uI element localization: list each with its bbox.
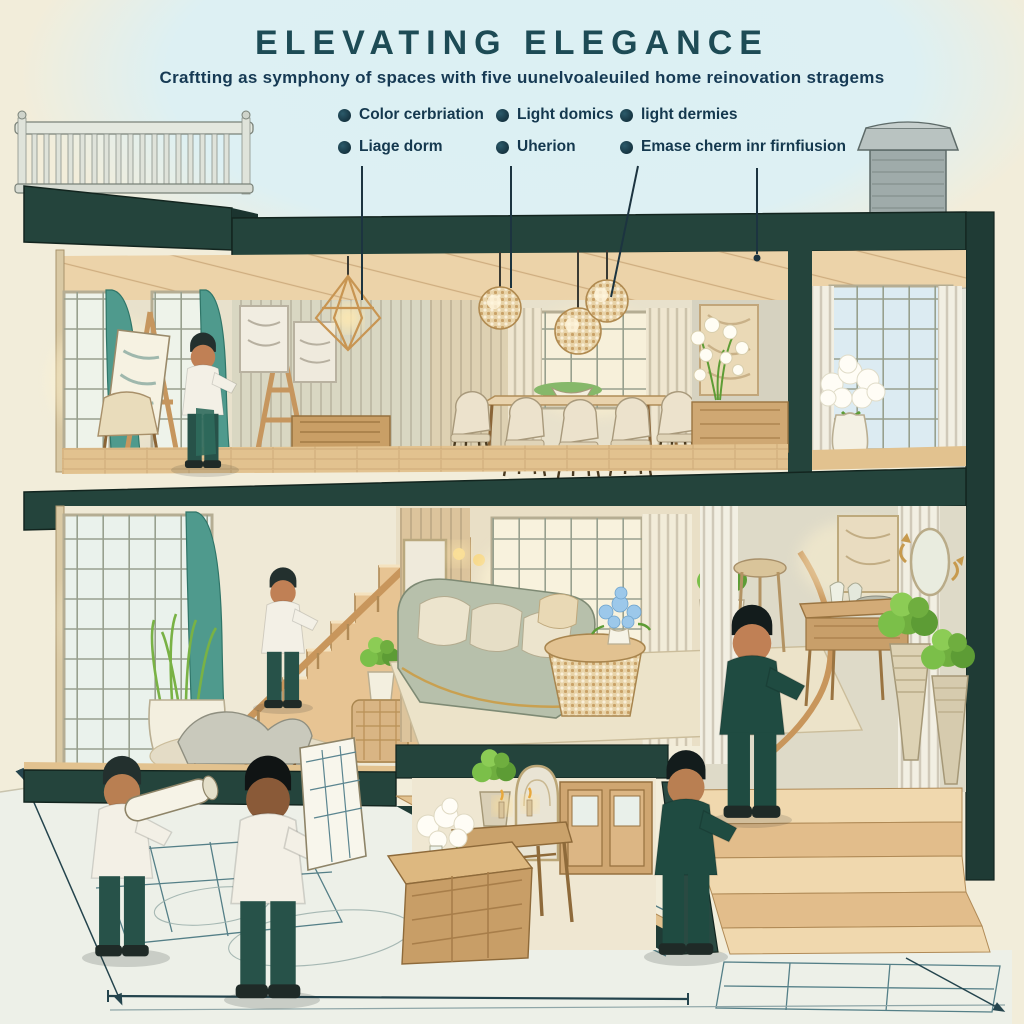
bullet-dot-icon	[338, 141, 351, 154]
bullet-dot-icon	[496, 141, 509, 154]
page-title: ELEVATING ELEGANCE	[0, 24, 1024, 63]
bullet-label: Emase cherm inr firnfiusion	[641, 138, 846, 156]
open-blueprint-sheet	[300, 738, 366, 870]
bullet-dot-icon	[338, 109, 351, 122]
page-subtitle: Craftting as symphony of spaces with fiv…	[10, 68, 1024, 88]
wood-doors	[560, 782, 652, 874]
bullet-dot-icon	[496, 109, 509, 122]
lower-alcove	[388, 745, 668, 964]
bullet-label: Light domics	[517, 106, 613, 124]
sideboard-orchid	[691, 300, 788, 452]
bullet-dot-icon	[620, 141, 633, 154]
bullet-dot-icon	[620, 109, 633, 122]
bullet-light-domics: Light domics	[496, 106, 613, 124]
chimney	[858, 122, 958, 216]
bullet-label: Liage dorm	[359, 138, 443, 156]
infographic-canvas: ELEVATING ELEGANCE Craftting as symphony…	[0, 0, 1024, 1024]
bullet-label: light dermies	[641, 106, 737, 124]
bullet-label: Uherion	[517, 138, 576, 156]
bullet-label: Color cerbriation	[359, 106, 484, 124]
bullet-emase-cherm: Emase cherm inr firnfiusion	[620, 138, 846, 156]
flower-room	[812, 286, 964, 466]
bullet-color-cerbriation: Color cerbriation	[338, 106, 484, 124]
bullet-light-dermies: light dermies	[620, 106, 737, 124]
bullet-liage-dorm: Liage dorm	[338, 138, 443, 156]
bullet-uherion: Uherion	[496, 138, 576, 156]
